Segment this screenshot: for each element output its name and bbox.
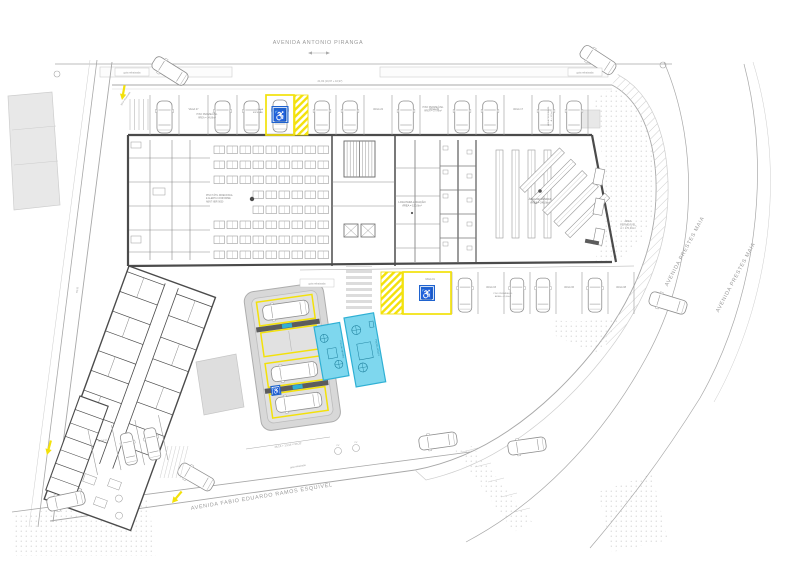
car-mirror [469, 110, 471, 113]
car-mirror [457, 287, 459, 290]
stall-label: VAGA 06 [564, 286, 575, 289]
permeable-note: PISO PERMEÁVELÁREA = 34,86m² [197, 113, 219, 119]
arrow-head [44, 448, 52, 455]
neighbor-building [8, 92, 60, 210]
car-mirror [413, 110, 415, 113]
car-icon [397, 101, 415, 133]
car-mirror [285, 411, 288, 413]
marker-dot [411, 212, 413, 214]
site-plan-drawing: PISO TÁTIL DIRECIONALE ALERTA CONFORMEAB… [0, 0, 800, 565]
curb-cut-label: guia rebaixada [576, 71, 594, 75]
arrow-stem [122, 85, 126, 95]
stall-label: VAGA 22 [373, 108, 384, 111]
note-line: ÁREA = 37,46m² [424, 109, 442, 112]
utility-circle [54, 71, 60, 77]
tactile-floor-note: PISO TÁTIL DIRECIONALE ALERTA CONFORMEAB… [206, 194, 234, 203]
car-body [567, 101, 582, 133]
car-icon [457, 278, 474, 312]
verge-region [598, 474, 668, 552]
car-body [343, 101, 358, 133]
curb-cut-label: guia rebaixada [308, 282, 326, 286]
car-mirror [230, 110, 232, 113]
car-mirror [581, 110, 583, 113]
car-icon [213, 101, 231, 133]
stall-label: VAGA 17 [513, 108, 524, 111]
note-line: ESPECIAL [253, 111, 264, 114]
car-icon [509, 278, 526, 312]
exterior-unit [593, 198, 605, 215]
car-icon [155, 101, 173, 133]
car-mirror [283, 395, 286, 397]
car-mirror [341, 110, 343, 113]
street-label-right-1: AVENIDA PRESTES MAIA [664, 216, 706, 288]
column [250, 197, 254, 201]
driveway-hatch [160, 446, 168, 478]
car-body [588, 278, 602, 312]
fixture [443, 218, 448, 222]
accessible-parking-icon: ♿ [272, 106, 289, 123]
car-body [510, 278, 524, 312]
note-line: ÁREA = 41,60m² [495, 295, 512, 298]
exterior-unit [593, 168, 605, 185]
shop-label: LOJA PARA LOCAÇÃOÁREA = 150,0m² [398, 199, 425, 208]
car-mirror [553, 110, 555, 113]
note-line: A = 170,46m² [620, 226, 636, 230]
dimension-text: 59,32 [76, 286, 80, 293]
car-body [399, 101, 414, 133]
car-mirror [509, 287, 511, 290]
permeable-note: PISO PERMEÁVELÁREA = 37,46m² [423, 106, 445, 112]
car-mirror [272, 319, 275, 321]
fixture [467, 222, 472, 226]
rect [593, 168, 605, 185]
car-icon [242, 101, 260, 133]
car-mirror [57, 509, 60, 511]
pool-basin [344, 313, 386, 387]
stall-label: VAGA 08 [616, 286, 627, 289]
note-line: E ALERTA CONFORME [206, 197, 231, 200]
wheelchair-glyph: ♿ [421, 288, 433, 300]
stall-label: VAGA 03 [486, 286, 497, 289]
accessible-parking-icon: ♿ [419, 285, 435, 301]
manhole-label: PV [337, 445, 340, 447]
fixture [467, 198, 472, 202]
fixture [443, 146, 448, 150]
fixture [443, 170, 448, 174]
car-body [483, 101, 498, 133]
street-label-right-2: AVENIDA PRESTES MAIA [715, 242, 757, 314]
car-mirror [133, 440, 135, 443]
car-icon [175, 460, 217, 494]
car-icon [418, 430, 458, 452]
car-mirror [587, 287, 589, 290]
car-body [215, 101, 230, 133]
accessible-parking-icon: ♿ [270, 385, 281, 396]
manhole-icon [335, 448, 342, 455]
car-mirror [426, 434, 429, 436]
stall-label: VAGA 27 [188, 108, 199, 111]
car-icon [313, 101, 331, 133]
curb-cut-label: guia rebaixada [123, 71, 141, 75]
car-mirror [550, 287, 552, 290]
car-mirror [515, 439, 518, 441]
access-aisle-hatch [381, 272, 402, 314]
pool-large: PISCINA ADULTO [344, 313, 386, 387]
stall-label: VAGA 01 [425, 278, 435, 281]
note-line: PISO TÁTIL DIRECIONAL [206, 194, 234, 197]
wheelchair-glyph: ♿ [272, 387, 281, 396]
sales-label: ÁREA DE VENDASÁREA = 240,0m² [529, 197, 552, 205]
marker-dot [538, 189, 542, 193]
car-mirror [453, 110, 455, 113]
arrow-stem [175, 491, 183, 500]
car-icon [535, 278, 552, 312]
car-body [458, 278, 472, 312]
car-mirror [397, 110, 399, 113]
note-line: ÁREA PERMEÁVEL [547, 105, 550, 126]
fixture [153, 188, 165, 195]
fixture [467, 246, 472, 250]
car-mirror [524, 287, 526, 290]
car-mirror [329, 110, 331, 113]
car-mirror [497, 110, 499, 113]
note-line: ÁREA = 150,0m² [402, 204, 422, 208]
fixture [131, 236, 141, 243]
fixture [467, 174, 472, 178]
car-body [418, 431, 458, 450]
car-mirror [120, 443, 122, 446]
car-mirror [242, 110, 244, 113]
rect [593, 198, 605, 215]
fixture [443, 194, 448, 198]
fixture [467, 150, 472, 154]
note-line: ABNT NBR 9050 [206, 200, 224, 203]
car-mirror [279, 364, 282, 366]
fixture [443, 242, 448, 246]
car-mirror [537, 110, 539, 113]
note-line: ÁREA = 34,86m² [198, 116, 216, 119]
car-icon [647, 289, 688, 317]
wall [128, 262, 612, 266]
curb-cut-label: guia rebaixada [290, 464, 307, 470]
manhole-label: PV [355, 442, 358, 444]
car-body [315, 101, 330, 133]
car-icon [565, 101, 583, 133]
note-line: VAGA [257, 108, 263, 111]
car-mirror [481, 110, 483, 113]
car-mirror [535, 287, 537, 290]
car-mirror [281, 381, 284, 383]
car-body [157, 101, 172, 133]
manhole-icon [353, 445, 360, 452]
car-mirror [472, 287, 474, 290]
note-line: ÁREA DE VENDAS [529, 197, 552, 201]
access-aisle-hatch [295, 95, 308, 135]
note-line: ÁREA = 240,0m² [530, 201, 550, 205]
car-icon [453, 101, 471, 133]
wheelchair-glyph: ♿ [273, 109, 286, 122]
note-line: LOJA PARA LOCAÇÃO [398, 199, 425, 204]
car-body [536, 278, 550, 312]
street-label-top: AVENIDA ANTONIO PIRANGA [273, 40, 364, 46]
car-mirror [155, 110, 157, 113]
car-body [244, 101, 259, 133]
car-body [150, 55, 190, 87]
car-body [455, 101, 470, 133]
crosswalk [346, 266, 372, 312]
car-mirror [313, 110, 315, 113]
car-icon [481, 101, 499, 133]
car-mirror [518, 454, 521, 456]
verge-region [455, 446, 532, 532]
road-line [714, 62, 770, 402]
note-line: ÁREA [624, 219, 631, 223]
driveway-hatch [164, 446, 172, 478]
car-mirror [143, 438, 145, 441]
car-icon [341, 101, 359, 133]
site-plan-page: { "document": { "type": "architectural-s… [0, 0, 800, 565]
car-mirror [54, 494, 57, 496]
dimension-text: 21,93 (10,97 + 10,97) [318, 79, 343, 83]
street-direction-arrow [326, 51, 330, 54]
car-mirror [357, 110, 359, 113]
note-line: PERMEÁVEL [620, 223, 636, 227]
note-line: PISO PERMEÁVEL [493, 292, 513, 295]
car-mirror [602, 287, 604, 290]
car-mirror [157, 435, 159, 438]
service-pad [196, 354, 244, 415]
car-mirror [429, 449, 432, 451]
dimension-text: 46,16 + 13,16 = 59,32 [274, 441, 302, 449]
car-mirror [172, 110, 174, 113]
car-icon [507, 435, 547, 457]
car-mirror [270, 303, 273, 305]
driveway-hatch [168, 446, 176, 478]
fixture [131, 142, 141, 148]
note-line: A = 12,5m² [550, 110, 553, 121]
car-mirror [565, 110, 567, 113]
car-body [507, 436, 547, 455]
car-icon [587, 278, 604, 312]
street-direction-arrow [308, 51, 312, 54]
